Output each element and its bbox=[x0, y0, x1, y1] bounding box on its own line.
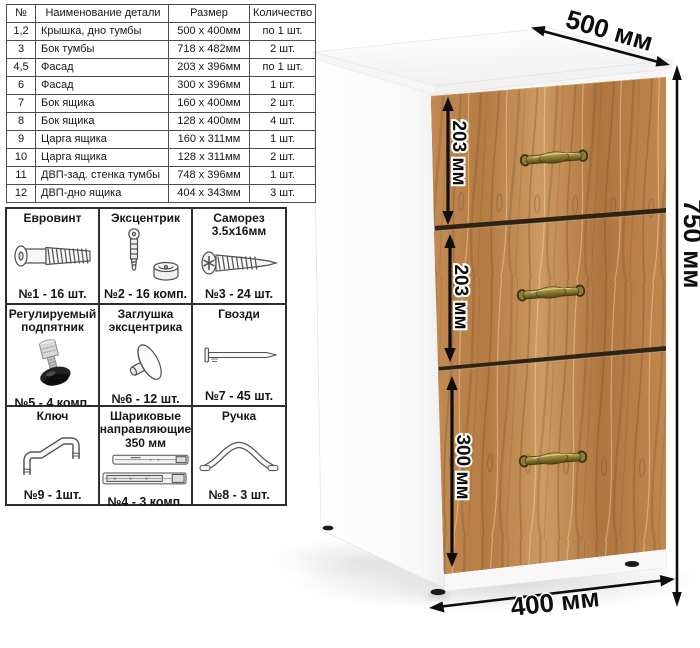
part-quantity: 3 шт. bbox=[250, 185, 316, 203]
hardware-item-name: Регулируемый подпятник bbox=[8, 308, 97, 335]
part-size: 160 x 400мм bbox=[169, 95, 250, 113]
screw-icon bbox=[194, 239, 284, 288]
table-row: 9Царга ящика160 x 311мм1 шт. bbox=[7, 131, 316, 149]
part-size: 500 x 400мм bbox=[169, 23, 250, 41]
parts-table-head: №Наименование деталиРазмерКоличество bbox=[7, 5, 316, 23]
hardware-item-count: №3 - 24 шт. bbox=[205, 288, 273, 301]
table-row: 8Бок ящика128 x 400мм4 шт. bbox=[7, 113, 316, 131]
assembly-instruction: 500 мм 750 мм 400 мм 203 мм bbox=[0, 0, 700, 648]
part-size: 748 x 396мм bbox=[169, 167, 250, 185]
table-header-row: №Наименование деталиРазмерКоличество bbox=[7, 5, 316, 23]
part-name: ДВП-дно ящика bbox=[36, 185, 169, 203]
cabinet-foot-front-right bbox=[625, 561, 639, 567]
part-quantity: 2 шт. bbox=[250, 95, 316, 113]
eccentric-cam-icon bbox=[101, 225, 190, 287]
height-dimension-label: 750 мм bbox=[678, 199, 700, 288]
cabinet-foot-back-left bbox=[323, 526, 334, 531]
hardware-item: Евровинт№1 - 16 шт. bbox=[6, 208, 99, 304]
part-size: 203 x 396мм bbox=[169, 59, 250, 77]
hardware-item-name: Эксцентрик bbox=[111, 212, 180, 225]
nail-icon bbox=[194, 321, 284, 389]
adjustable-foot-icon bbox=[8, 335, 97, 397]
hardware-item: Гвозди№7 - 45 шт. bbox=[192, 304, 286, 406]
parts-table: №Наименование деталиРазмерКоличество 1,2… bbox=[6, 4, 316, 203]
part-number: 7 bbox=[7, 95, 36, 113]
cam-cap-icon bbox=[101, 335, 190, 393]
drawer-1-height-label: 203 мм bbox=[448, 120, 469, 185]
part-name: Царга ящика bbox=[36, 149, 169, 167]
hardware-grid: Евровинт№1 - 16 шт.Эксцентрик№2 - 16 ком… bbox=[5, 207, 287, 506]
hex-key-icon bbox=[8, 423, 97, 488]
hardware-item-count: №8 - 3 шт. bbox=[208, 489, 269, 502]
hardware-item-count: №9 - 1шт. bbox=[24, 489, 82, 502]
hardware-item: Регулируемый подпятник№5 - 4 комп. bbox=[6, 304, 99, 406]
table-row: 3Бок тумбы718 x 482мм2 шт. bbox=[7, 41, 316, 59]
part-number: 6 bbox=[7, 77, 36, 95]
arrowhead bbox=[672, 592, 682, 607]
part-number: 8 bbox=[7, 113, 36, 131]
table-row: 6Фасад300 x 396мм1 шт. bbox=[7, 77, 316, 95]
column-header: Наименование детали bbox=[36, 5, 169, 23]
part-number: 11 bbox=[7, 167, 36, 185]
part-size: 128 x 400мм bbox=[169, 113, 250, 131]
hardware-item-name: Шариковые направляющие 350 мм bbox=[100, 410, 191, 450]
hardware-item-name: Ручка bbox=[222, 410, 256, 423]
euroscrew-icon bbox=[8, 225, 97, 287]
hardware-item-count: №7 - 45 шт. bbox=[205, 390, 273, 403]
hardware-item-name: Заглушка эксцентрика bbox=[101, 308, 190, 335]
part-size: 404 x 343мм bbox=[169, 185, 250, 203]
part-quantity: по 1 шт. bbox=[250, 59, 316, 77]
cabinet-side-panel bbox=[313, 58, 444, 588]
dimension-height: 750 мм bbox=[672, 65, 700, 607]
hardware-item-count: №4 - 3 комп. bbox=[107, 496, 183, 509]
part-name: Бок ящика bbox=[36, 113, 169, 131]
hardware-item-name: Гвозди bbox=[218, 308, 260, 321]
table-row: 1,2Крышка, дно тумбы500 x 400ммпо 1 шт. bbox=[7, 23, 316, 41]
part-quantity: по 1 шт. bbox=[250, 23, 316, 41]
hardware-item-name: Саморез 3.5х16мм bbox=[194, 212, 284, 239]
cabinet bbox=[313, 28, 672, 599]
hardware-item-count: №6 - 12 шт. bbox=[111, 393, 179, 406]
drawer-3-height-label: 300 мм bbox=[452, 434, 473, 499]
ball-slides-icon bbox=[101, 450, 190, 496]
part-number: 12 bbox=[7, 185, 36, 203]
table-row: 7Бок ящика160 x 400мм2 шт. bbox=[7, 95, 316, 113]
part-number: 1,2 bbox=[7, 23, 36, 41]
column-header: Размер bbox=[169, 5, 250, 23]
part-number: 9 bbox=[7, 131, 36, 149]
column-header: № bbox=[7, 5, 36, 23]
part-quantity: 2 шт. bbox=[250, 149, 316, 167]
part-quantity: 1 шт. bbox=[250, 167, 316, 185]
part-size: 300 x 396мм bbox=[169, 77, 250, 95]
part-quantity: 1 шт. bbox=[250, 131, 316, 149]
hardware-item: Ручка№8 - 3 шт. bbox=[192, 406, 286, 505]
part-quantity: 1 шт. bbox=[250, 77, 316, 95]
part-size: 128 x 311мм bbox=[169, 149, 250, 167]
part-name: Фасад bbox=[36, 77, 169, 95]
part-name: Бок тумбы bbox=[36, 41, 169, 59]
part-quantity: 2 шт. bbox=[250, 41, 316, 59]
hardware-item-name: Евровинт bbox=[24, 212, 82, 225]
hardware-item: Заглушка эксцентрика№6 - 12 шт. bbox=[99, 304, 192, 406]
hardware-item-count: №1 - 16 шт. bbox=[18, 288, 86, 301]
column-header: Количество bbox=[250, 5, 316, 23]
arrowhead bbox=[672, 65, 682, 80]
drawer-2-height-label: 203 мм bbox=[450, 264, 471, 329]
hardware-item: Саморез 3.5х16мм№3 - 24 шт. bbox=[192, 208, 286, 304]
part-name: Царга ящика bbox=[36, 131, 169, 149]
part-number: 10 bbox=[7, 149, 36, 167]
part-size: 160 x 311мм bbox=[169, 131, 250, 149]
hardware-item: Ключ№9 - 1шт. bbox=[6, 406, 99, 505]
part-name: Бок ящика bbox=[36, 95, 169, 113]
part-number: 4,5 bbox=[7, 59, 36, 77]
table-row: 4,5Фасад203 x 396ммпо 1 шт. bbox=[7, 59, 316, 77]
part-name: Крышка, дно тумбы bbox=[36, 23, 169, 41]
table-row: 12ДВП-дно ящика404 x 343мм3 шт. bbox=[7, 185, 316, 203]
part-name: Фасад bbox=[36, 59, 169, 77]
part-quantity: 4 шт. bbox=[250, 113, 316, 131]
hardware-item: Эксцентрик№2 - 16 комп. bbox=[99, 208, 192, 304]
parts-table-body: 1,2Крышка, дно тумбы500 x 400ммпо 1 шт.3… bbox=[7, 23, 316, 203]
handle-icon bbox=[194, 423, 284, 488]
table-row: 10Царга ящика128 x 311мм2 шт. bbox=[7, 149, 316, 167]
part-name: ДВП-зад. стенка тумбы bbox=[36, 167, 169, 185]
part-number: 3 bbox=[7, 41, 36, 59]
part-size: 718 x 482мм bbox=[169, 41, 250, 59]
hardware-item-name: Ключ bbox=[37, 410, 69, 423]
hardware-item: Шариковые направляющие 350 мм№4 - 3 комп… bbox=[99, 406, 192, 505]
foot-shadow bbox=[426, 593, 450, 599]
table-row: 11ДВП-зад. стенка тумбы748 x 396мм1 шт. bbox=[7, 167, 316, 185]
hardware-item-count: №2 - 16 комп. bbox=[104, 288, 187, 301]
